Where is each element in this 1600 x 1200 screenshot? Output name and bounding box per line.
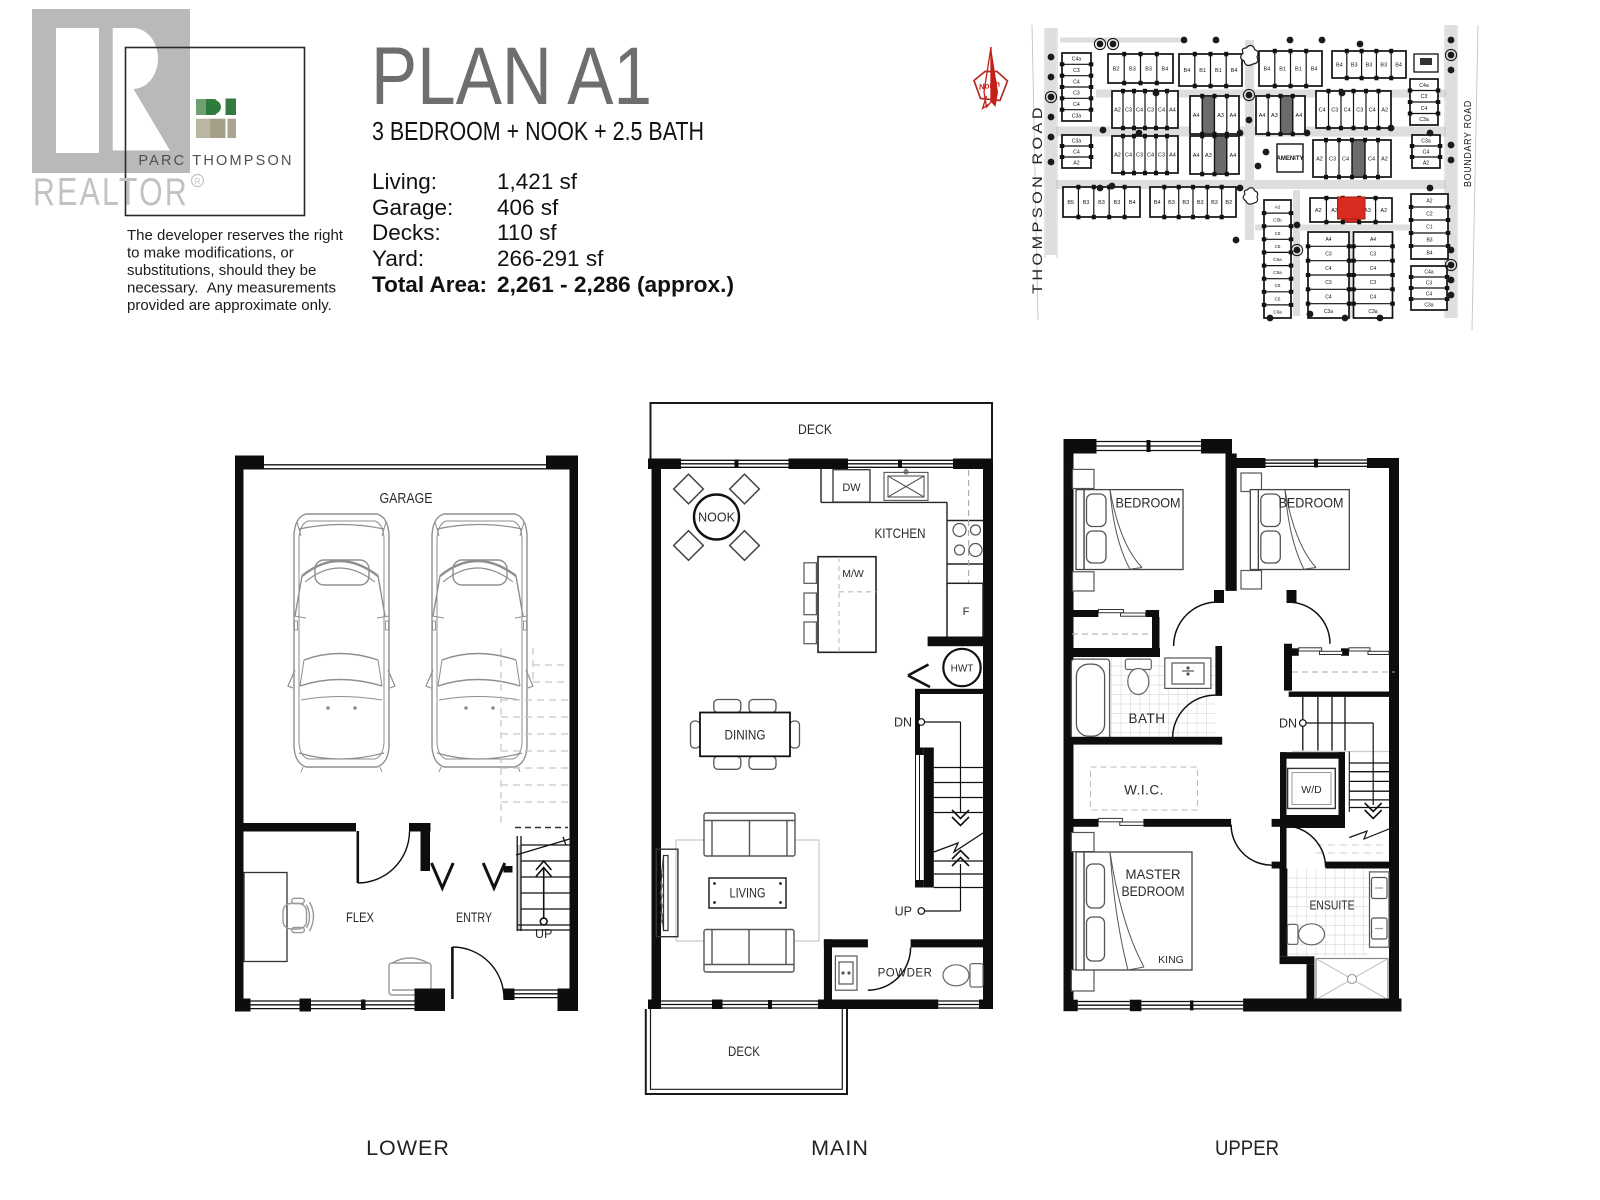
svg-text:C3: C3 bbox=[1331, 108, 1338, 114]
svg-text:A3: A3 bbox=[1331, 208, 1338, 214]
svg-text:C3a: C3a bbox=[1424, 303, 1433, 309]
svg-text:C3: C3 bbox=[1073, 91, 1080, 97]
svg-text:LOWER: LOWER bbox=[366, 1136, 450, 1160]
svg-text:KING: KING bbox=[1158, 954, 1184, 966]
svg-text:ENTRY: ENTRY bbox=[456, 909, 492, 925]
svg-text:A4: A4 bbox=[1193, 113, 1200, 119]
svg-text:B4: B4 bbox=[1231, 68, 1238, 74]
svg-text:B4: B4 bbox=[1162, 67, 1169, 73]
svg-text:B4: B4 bbox=[1336, 63, 1343, 69]
svg-text:HWT: HWT bbox=[951, 664, 974, 675]
svg-text:A4: A4 bbox=[1259, 113, 1266, 119]
svg-text:3 BEDROOM + NOOK + 2.5 BATH: 3 BEDROOM + NOOK + 2.5 BATH bbox=[372, 116, 704, 146]
svg-text:C1: C1 bbox=[1426, 225, 1433, 231]
svg-text:Decks:: Decks: bbox=[372, 220, 441, 245]
svg-text:C3: C3 bbox=[1325, 252, 1332, 258]
svg-text:C4: C4 bbox=[1426, 292, 1433, 298]
svg-text:B1: B1 bbox=[1215, 68, 1222, 74]
svg-text:DW: DW bbox=[842, 482, 861, 494]
svg-text:C6: C6 bbox=[1275, 283, 1281, 288]
svg-text:C4: C4 bbox=[1421, 106, 1428, 112]
svg-text:ENSUITE: ENSUITE bbox=[1310, 899, 1355, 913]
svg-text:R: R bbox=[195, 177, 201, 186]
svg-text:GARAGE: GARAGE bbox=[380, 491, 433, 507]
svg-text:Total Area:: Total Area: bbox=[372, 272, 487, 297]
svg-text:C4: C4 bbox=[1073, 79, 1080, 85]
svg-text:C4: C4 bbox=[1370, 266, 1377, 272]
svg-text:A4: A4 bbox=[1193, 153, 1200, 159]
svg-text:UP: UP bbox=[895, 905, 912, 919]
svg-text:C3: C3 bbox=[1125, 108, 1132, 114]
svg-text:C4: C4 bbox=[1319, 108, 1326, 114]
svg-text:B3: B3 bbox=[1182, 200, 1189, 206]
svg-text:A4: A4 bbox=[1169, 108, 1176, 114]
svg-text:A3: A3 bbox=[1217, 113, 1224, 119]
svg-text:C4: C4 bbox=[1342, 157, 1349, 163]
svg-text:C4a: C4a bbox=[1424, 270, 1433, 276]
svg-text:C4a: C4a bbox=[1419, 83, 1429, 89]
svg-text:B1: B1 bbox=[1199, 68, 1206, 74]
svg-text:B4: B4 bbox=[1264, 67, 1271, 73]
svg-text:THOMPSON ROAD: THOMPSON ROAD bbox=[1029, 104, 1045, 294]
svg-text:BEDROOM: BEDROOM bbox=[1122, 883, 1185, 899]
svg-text:C5b: C5b bbox=[1273, 218, 1282, 223]
svg-text:406 sf: 406 sf bbox=[497, 195, 559, 220]
svg-text:C4: C4 bbox=[1369, 108, 1376, 114]
svg-text:B3: B3 bbox=[1197, 200, 1204, 206]
svg-text:B3: B3 bbox=[1098, 200, 1105, 206]
svg-text:Garage:: Garage: bbox=[372, 195, 453, 220]
svg-text:C4: C4 bbox=[1423, 150, 1430, 156]
svg-text:C4: C4 bbox=[1370, 295, 1377, 301]
svg-text:B4: B4 bbox=[1311, 67, 1318, 73]
svg-text:C5: C5 bbox=[1275, 244, 1281, 249]
svg-text:C3: C3 bbox=[1370, 252, 1377, 258]
svg-text:B3: B3 bbox=[1145, 67, 1152, 73]
svg-text:The developer reserves the rig: The developer reserves the right bbox=[127, 227, 344, 244]
svg-text:DECK: DECK bbox=[798, 421, 833, 437]
svg-text:C3: C3 bbox=[1421, 94, 1428, 100]
svg-text:C6a: C6a bbox=[1273, 257, 1282, 262]
svg-text:B3: B3 bbox=[1168, 200, 1175, 206]
svg-text:A2: A2 bbox=[1381, 157, 1388, 163]
svg-text:PLAN A1: PLAN A1 bbox=[371, 31, 652, 122]
svg-text:A4: A4 bbox=[1230, 153, 1237, 159]
svg-text:B3: B3 bbox=[1426, 238, 1432, 244]
svg-text:C4: C4 bbox=[1325, 266, 1332, 272]
svg-text:B1: B1 bbox=[1279, 67, 1286, 73]
svg-text:A4: A4 bbox=[1325, 237, 1331, 243]
svg-text:B4: B4 bbox=[1395, 63, 1402, 69]
svg-text:A4: A4 bbox=[1169, 153, 1176, 159]
svg-text:M/W: M/W bbox=[842, 568, 864, 580]
svg-text:B5: B5 bbox=[1067, 200, 1074, 206]
svg-text:A4: A4 bbox=[1296, 113, 1303, 119]
svg-text:A2: A2 bbox=[1380, 208, 1387, 214]
svg-text:Living:: Living: bbox=[372, 169, 437, 194]
svg-text:C3: C3 bbox=[1426, 281, 1433, 287]
svg-text:MASTER: MASTER bbox=[1126, 866, 1181, 882]
svg-text:A2: A2 bbox=[1423, 161, 1429, 167]
svg-text:A2: A2 bbox=[1275, 205, 1281, 210]
svg-text:C4: C4 bbox=[1073, 102, 1080, 108]
svg-text:necessary. Any measurements: necessary. Any measurements bbox=[127, 280, 336, 297]
svg-text:BEDROOM: BEDROOM bbox=[1279, 495, 1344, 511]
svg-text:C4a: C4a bbox=[1072, 57, 1082, 63]
svg-text:A2: A2 bbox=[1426, 199, 1432, 205]
svg-text:C3a: C3a bbox=[1421, 139, 1431, 145]
svg-text:C3: C3 bbox=[1147, 108, 1154, 114]
svg-text:C4: C4 bbox=[1344, 108, 1351, 114]
svg-text:C3a: C3a bbox=[1419, 117, 1429, 123]
svg-text:C3: C3 bbox=[1370, 280, 1377, 286]
svg-text:C6: C6 bbox=[1275, 231, 1281, 236]
svg-text:BATH: BATH bbox=[1128, 711, 1165, 726]
svg-text:NOOK: NOOK bbox=[698, 511, 735, 525]
svg-text:Yard:: Yard: bbox=[372, 246, 424, 271]
svg-text:C2: C2 bbox=[1426, 212, 1433, 218]
svg-text:B3: B3 bbox=[1129, 67, 1136, 73]
svg-text:A4: A4 bbox=[1370, 237, 1376, 243]
svg-text:C3a: C3a bbox=[1072, 139, 1082, 145]
svg-text:C3a: C3a bbox=[1368, 309, 1377, 315]
svg-text:UP: UP bbox=[535, 927, 552, 941]
svg-text:C4: C4 bbox=[1147, 153, 1154, 159]
svg-text:provided are approximate only.: provided are approximate only. bbox=[127, 297, 332, 314]
svg-text:C4: C4 bbox=[1136, 108, 1143, 114]
svg-text:to make modifications, or: to make modifications, or bbox=[127, 245, 294, 262]
svg-text:266-291 sf: 266-291 sf bbox=[497, 246, 604, 271]
svg-text:F: F bbox=[963, 606, 970, 618]
svg-text:C5: C5 bbox=[1275, 296, 1281, 301]
svg-text:C4: C4 bbox=[1125, 153, 1132, 159]
svg-text:B1: B1 bbox=[1295, 67, 1302, 73]
svg-text:LIVING: LIVING bbox=[730, 886, 766, 901]
svg-text:DN: DN bbox=[894, 716, 912, 730]
svg-text:DN: DN bbox=[1279, 717, 1297, 731]
svg-text:2,261 - 2,286 (approx.): 2,261 - 2,286 (approx.) bbox=[497, 272, 734, 297]
svg-text:1,421 sf: 1,421 sf bbox=[497, 169, 578, 194]
svg-text:C4: C4 bbox=[1325, 295, 1332, 301]
svg-text:C4: C4 bbox=[1158, 108, 1165, 114]
svg-text:AMENITY: AMENITY bbox=[1277, 156, 1304, 162]
svg-text:KITCHEN: KITCHEN bbox=[875, 525, 926, 541]
svg-text:B3: B3 bbox=[1083, 200, 1090, 206]
svg-text:A4: A4 bbox=[1230, 113, 1237, 119]
svg-text:B4: B4 bbox=[1184, 68, 1191, 74]
svg-text:W.I.C.: W.I.C. bbox=[1124, 783, 1164, 798]
svg-text:A3: A3 bbox=[1271, 113, 1278, 119]
svg-text:PARC THOMPSON: PARC THOMPSON bbox=[138, 153, 293, 169]
svg-text:FLEX: FLEX bbox=[346, 909, 375, 925]
svg-text:C5a: C5a bbox=[1273, 270, 1282, 275]
svg-text:A2: A2 bbox=[1315, 208, 1322, 214]
svg-text:A2: A2 bbox=[1114, 153, 1121, 159]
svg-text:BOUNDARY ROAD: BOUNDARY ROAD bbox=[1462, 100, 1474, 187]
svg-text:C3: C3 bbox=[1136, 153, 1143, 159]
svg-text:C3: C3 bbox=[1329, 157, 1336, 163]
svg-text:C3: C3 bbox=[1073, 68, 1080, 74]
svg-text:A3: A3 bbox=[1205, 153, 1212, 159]
svg-text:C4: C4 bbox=[1368, 157, 1375, 163]
svg-text:B3: B3 bbox=[1366, 63, 1373, 69]
svg-text:A2: A2 bbox=[1381, 108, 1388, 114]
svg-text:BEDROOM: BEDROOM bbox=[1116, 495, 1181, 511]
svg-text:B3: B3 bbox=[1351, 63, 1358, 69]
svg-text:A2: A2 bbox=[1073, 161, 1079, 167]
svg-text:B3: B3 bbox=[1211, 200, 1218, 206]
svg-text:MAIN: MAIN bbox=[811, 1136, 869, 1160]
svg-text:C3: C3 bbox=[1356, 108, 1363, 114]
svg-text:B4: B4 bbox=[1129, 200, 1136, 206]
svg-text:UPPER: UPPER bbox=[1215, 1136, 1279, 1160]
svg-text:110 sf: 110 sf bbox=[497, 220, 557, 245]
svg-text:B2: B2 bbox=[1225, 200, 1232, 206]
svg-text:DECK: DECK bbox=[728, 1043, 761, 1059]
svg-text:C3a: C3a bbox=[1324, 309, 1333, 315]
svg-text:W/D: W/D bbox=[1301, 784, 1322, 796]
svg-text:C6a: C6a bbox=[1273, 309, 1282, 314]
svg-text:B2: B2 bbox=[1113, 67, 1120, 73]
svg-text:DINING: DINING bbox=[725, 728, 766, 743]
svg-text:A2: A2 bbox=[1316, 157, 1323, 163]
svg-text:B3: B3 bbox=[1114, 200, 1121, 206]
svg-text:C3: C3 bbox=[1325, 280, 1332, 286]
svg-text:REALTOR: REALTOR bbox=[33, 171, 189, 214]
svg-text:C3a: C3a bbox=[1072, 113, 1082, 119]
svg-text:C4: C4 bbox=[1073, 150, 1080, 156]
svg-text:C3: C3 bbox=[1158, 153, 1165, 159]
svg-text:B3: B3 bbox=[1380, 63, 1387, 69]
svg-text:B4: B4 bbox=[1154, 200, 1161, 206]
svg-text:substitutions, should they be: substitutions, should they be bbox=[127, 262, 316, 279]
svg-text:POWDER: POWDER bbox=[878, 968, 933, 980]
svg-text:A2: A2 bbox=[1114, 108, 1121, 114]
svg-text:B4: B4 bbox=[1426, 251, 1432, 257]
